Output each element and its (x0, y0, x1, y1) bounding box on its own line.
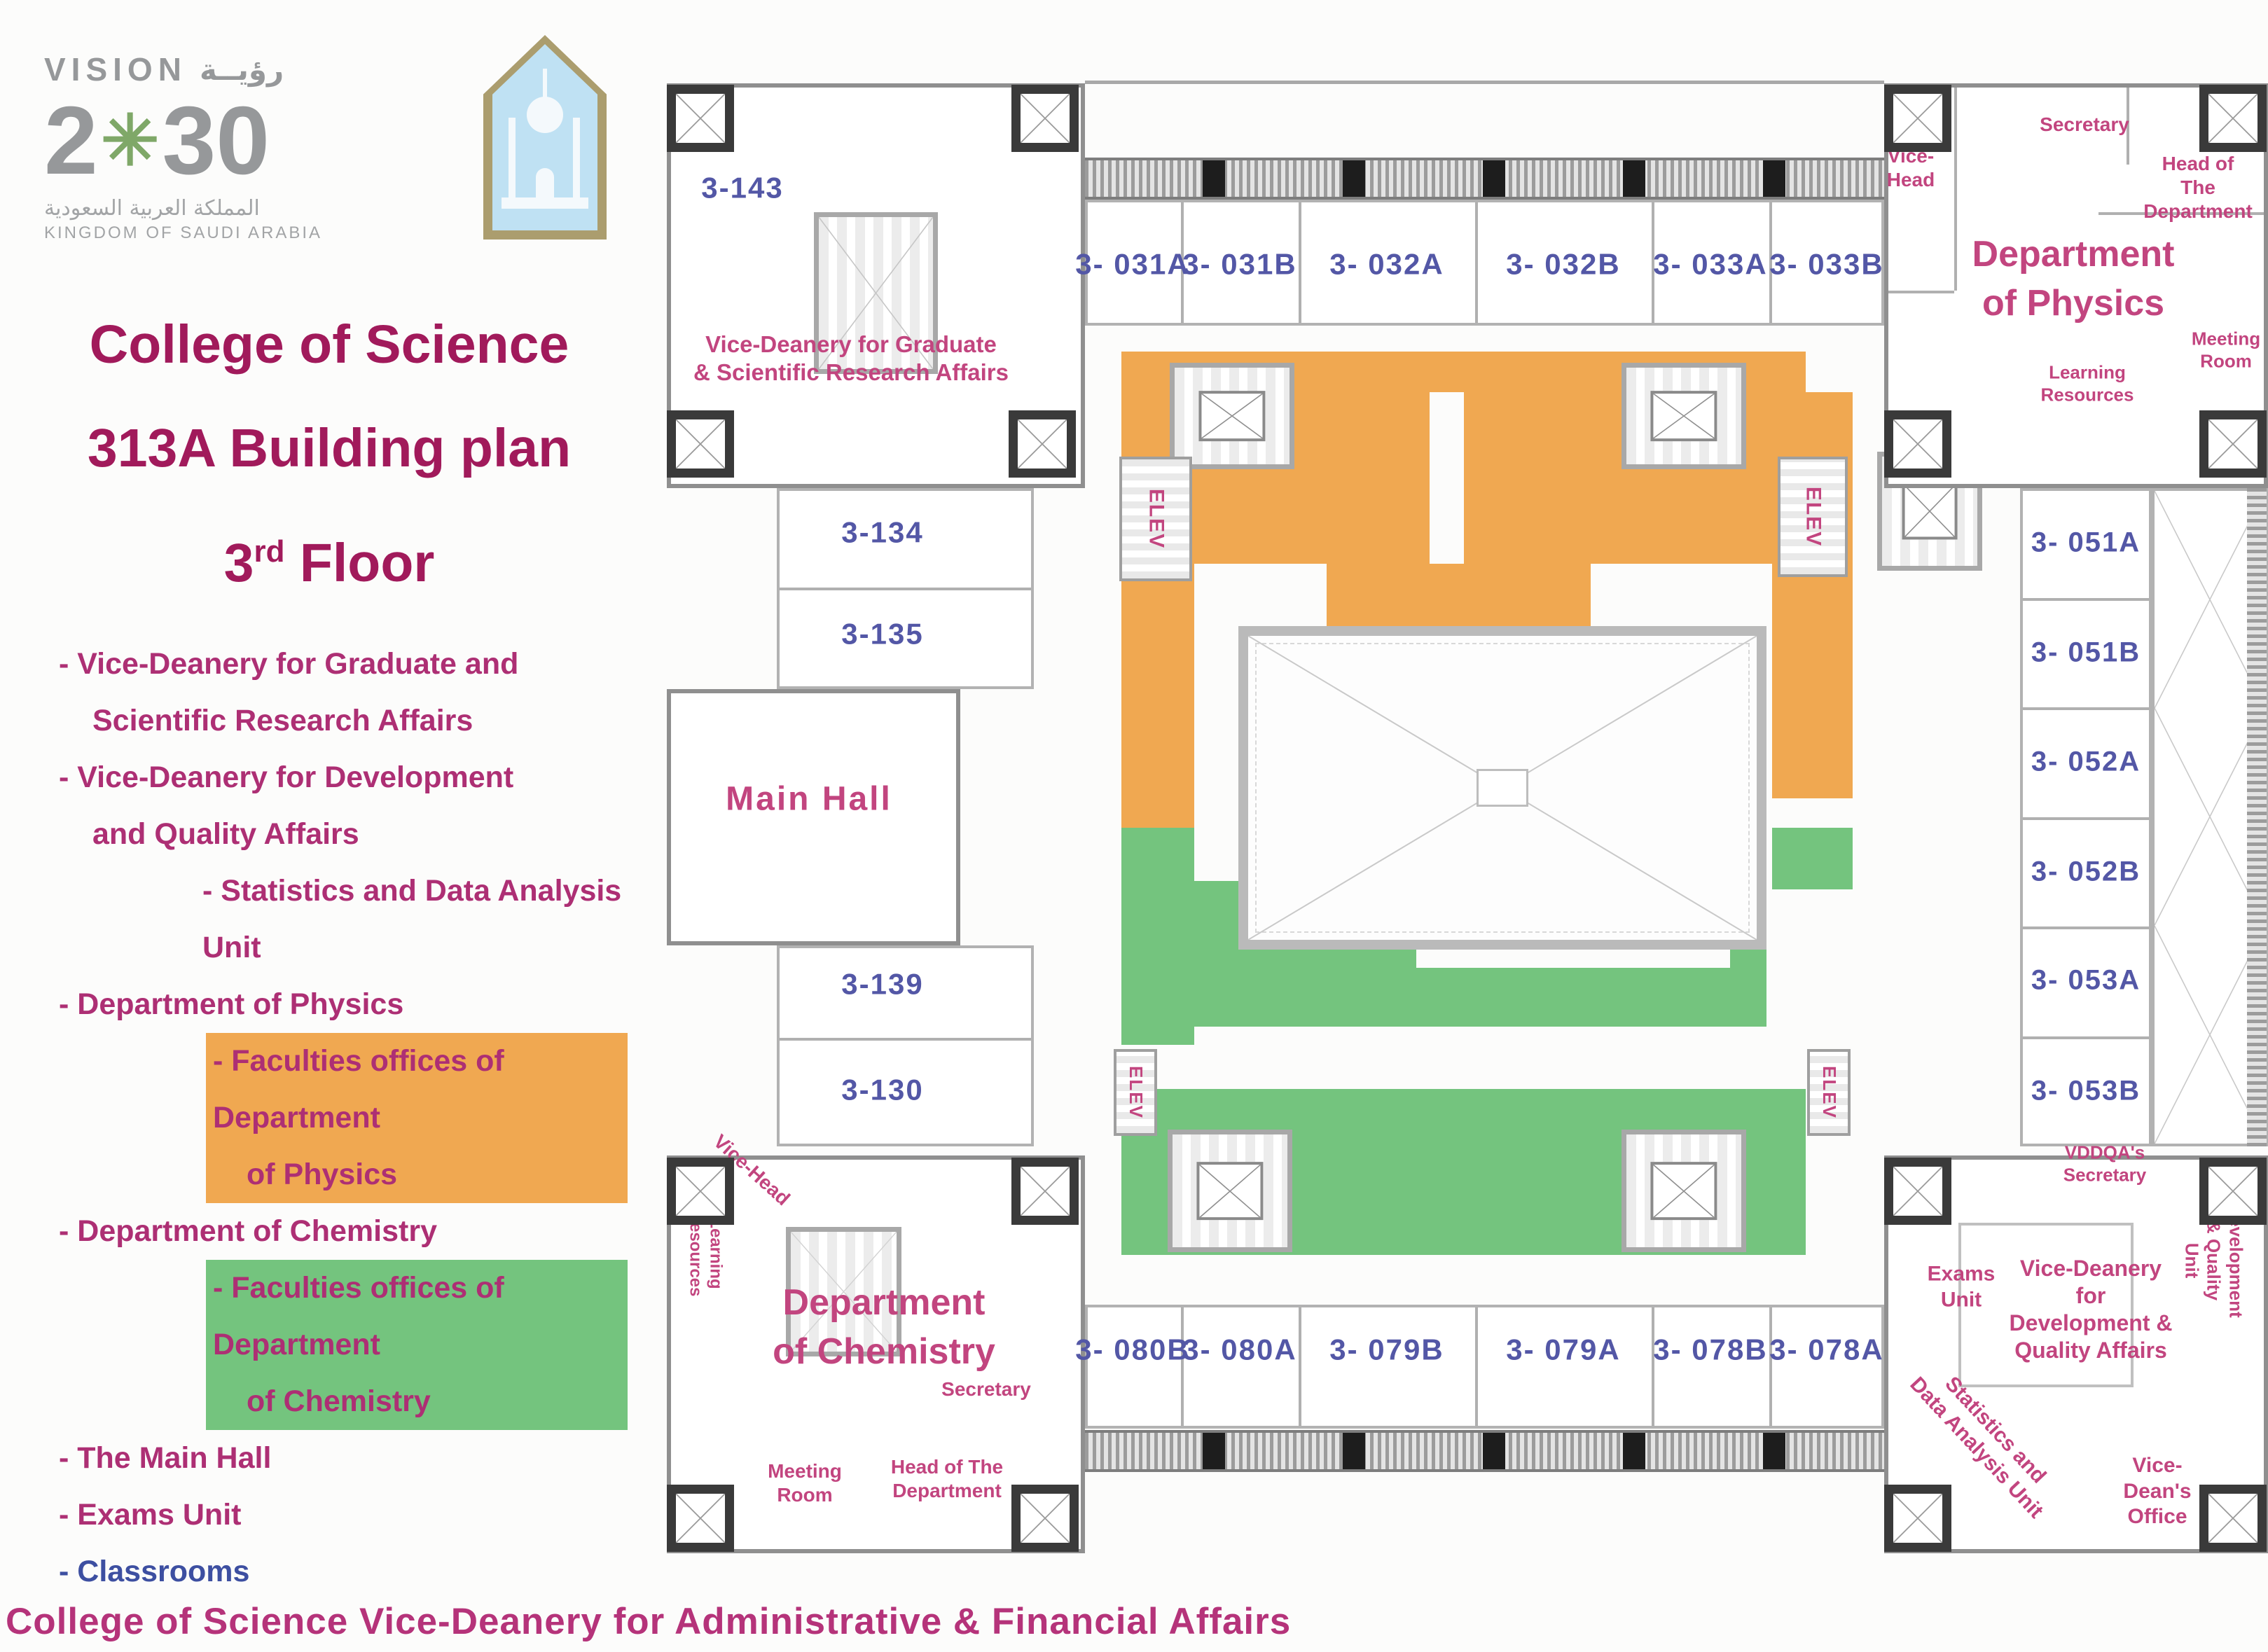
central-courtyard (1238, 626, 1766, 950)
room-label-3-053B: 3- 053B (2031, 1074, 2141, 1109)
room-label-3-135: 3-135 (841, 616, 923, 651)
wall (1954, 88, 1957, 291)
stair-x (1653, 1165, 1714, 1218)
stair-x (1893, 1494, 1942, 1543)
room-divider (2023, 598, 2149, 601)
corner-stair (667, 1485, 734, 1552)
outer-wall-top (1085, 81, 1884, 84)
stair-x (1201, 394, 1262, 438)
corner-stair (1009, 410, 1076, 478)
label-chemistry-head-of-department: Head of The Department (891, 1455, 1003, 1503)
legend-item-main-hall: - The Main Hall (59, 1430, 661, 1487)
label-exams-unit: Exams Unit (1928, 1261, 1996, 1312)
emblem-door (536, 168, 554, 197)
room-label-3-139: 3-139 (841, 966, 923, 1001)
label-chemistry-meeting-room: Meeting Room (768, 1459, 842, 1507)
emblem-minaret-right (573, 118, 580, 200)
kingdom-english: KINGDOM OF SAUDI ARABIA (44, 223, 338, 243)
stair-x (1653, 394, 1714, 438)
legend-text: - Faculties offices of Department (213, 1033, 628, 1146)
corner-stair (2199, 410, 2267, 478)
room-label-3-051A: 3- 051A (2031, 526, 2141, 560)
legend-text: - Department of Chemistry (59, 1203, 661, 1260)
year-digit-2: 2 (44, 92, 98, 189)
room-label-3-031A: 3- 031A (1075, 246, 1189, 282)
stair-x (1021, 1494, 1070, 1543)
stair-x (676, 1167, 725, 1216)
corner-stair (1011, 85, 1079, 152)
stair-core-inner (1650, 1162, 1717, 1221)
corner-stair (667, 1158, 734, 1225)
page-title: College of Science 313A Building plan 3r… (21, 293, 637, 615)
corner-stair (1884, 85, 1951, 152)
corner-stair (2199, 85, 2267, 152)
room-divider (2023, 926, 2149, 929)
stair-core-upper-left (1170, 363, 1294, 469)
stair-core-upper-right (1622, 363, 1746, 469)
legend-item-statistics-unit: - Statistics and Data Analysis Unit (202, 863, 661, 976)
label-physics-head-of-department: Head of The Department (2143, 152, 2253, 223)
label-department-of-physics: Department of Physics (1972, 230, 2175, 328)
label-physics-secretary: Secretary (2040, 113, 2129, 137)
wall (1888, 291, 1954, 293)
stair-x (1905, 485, 1955, 536)
room-divider (1475, 1307, 1478, 1426)
label-department-of-chemistry: Department of Chemistry (773, 1278, 995, 1376)
legend-text: - Vice-Deanery for Development (59, 749, 661, 806)
room-label-3-079B: 3- 079B (1329, 1331, 1444, 1367)
vision-2030-logo: VISION رؤيــة 2 ✳ 30 المملكة العربية الس… (44, 50, 338, 243)
university-emblem (483, 35, 607, 240)
corner-stair (1884, 1485, 1951, 1552)
stair-core-inner (1902, 483, 1958, 539)
legend-item-dept-chemistry: - Department of Chemistry (59, 1203, 661, 1260)
legend-text: - Exams Unit (59, 1487, 661, 1543)
legend-text: of Chemistry (213, 1373, 628, 1430)
east-classrooms (2020, 488, 2152, 1146)
palm-emblem-icon: ✳ (101, 106, 160, 176)
stair-x (2208, 419, 2257, 468)
floor-word: Floor (284, 533, 434, 593)
room-label-3-052A: 3- 052A (2031, 745, 2141, 779)
room-label-3-078B: 3- 078B (1653, 1331, 1767, 1367)
room-divider (1475, 202, 1478, 323)
legend-text: - The Main Hall (59, 1430, 661, 1487)
stair-x (676, 94, 725, 143)
legend-item-vd-graduate: - Vice-Deanery for Graduate and Scientif… (59, 636, 661, 749)
label-elev-lower-right: ELEV (1818, 1066, 1840, 1119)
corner-stair (1011, 1158, 1079, 1225)
physics-office-zone (1772, 392, 1853, 798)
facade-bottom (1085, 1430, 1884, 1472)
stair-x (2208, 1167, 2257, 1216)
emblem-dome (527, 97, 563, 133)
stair-core-lower-left (1168, 1130, 1292, 1252)
stair-x (1199, 1165, 1260, 1218)
room-divider (2023, 707, 2149, 710)
legend-text: - Statistics and Data Analysis Unit (202, 863, 661, 976)
corner-stair (667, 410, 734, 478)
physics-office-zone (1327, 564, 1591, 626)
legend-item-classrooms: - Classrooms (59, 1543, 661, 1600)
stair-x (1893, 94, 1942, 143)
label-vice-deanery-graduate: Vice-Deanery for Graduate & Scientific R… (693, 331, 1009, 387)
room-label-3-130: 3-130 (841, 1071, 923, 1107)
stair-x (676, 1494, 725, 1543)
room-divider (1299, 202, 1301, 323)
title-line-3: 3rd Floor (21, 500, 637, 615)
title-line-2: 313A Building plan (21, 396, 637, 500)
label-elev-upper-right: ELEV (1800, 487, 1826, 547)
legend-item-dept-physics: - Department of Physics (59, 976, 661, 1033)
room-label-3-033B: 3- 033B (1769, 246, 1883, 282)
room-label-3-080A: 3- 080A (1182, 1331, 1297, 1367)
floor-ordinal-suffix: rd (254, 534, 284, 569)
stair-x (1021, 1167, 1070, 1216)
legend-item-physics-offices: - Faculties offices of Department of Phy… (206, 1033, 628, 1203)
label-vice-dean-office: Vice-Dean's Office (2102, 1453, 2213, 1530)
room-label-3-134: 3-134 (841, 514, 923, 550)
stair-x (1893, 419, 1942, 468)
courtyard-center-box (1477, 769, 1528, 807)
floor-plan-page: VISION رؤيــة 2 ✳ 30 المملكة العربية الس… (0, 0, 2268, 1652)
corner-stair (1884, 1158, 1951, 1225)
vision-logo-row: VISION رؤيــة (44, 50, 338, 88)
label-physics-meeting-room: Meeting Room (2192, 328, 2260, 372)
label-main-hall: Main Hall (726, 779, 892, 821)
year-digits-30: 30 (163, 92, 270, 189)
room-label-3-080B: 3- 080B (1075, 1331, 1189, 1367)
chemistry-office-zone (1772, 828, 1853, 889)
room-divider (2023, 1036, 2149, 1039)
label-chemistry-secretary: Secretary (941, 1377, 1031, 1401)
emblem-minaret-left (509, 118, 516, 200)
corner-stair (667, 85, 734, 152)
legend-text: Scientific Research Affairs (59, 693, 661, 749)
room-label-3-052B: 3- 052B (2031, 855, 2141, 889)
room-label-3-032A: 3- 032A (1329, 246, 1444, 282)
corner-stair (2199, 1485, 2267, 1552)
legend-item-exams-unit: - Exams Unit (59, 1487, 661, 1543)
corner-stair (1884, 410, 1951, 478)
title-line-1: College of Science (21, 293, 637, 396)
stair-x (1021, 94, 1070, 143)
corner-stair (2199, 1158, 2267, 1225)
legend: - Vice-Deanery for Graduate and Scientif… (59, 636, 661, 1600)
label-elev-upper-left: ELEV (1143, 489, 1169, 549)
vision-word: VISION (44, 50, 187, 88)
room-label-3-031B: 3- 031B (1182, 246, 1297, 282)
legend-text: - Vice-Deanery for Graduate and (59, 636, 661, 693)
label-elev-lower-left: ELEV (1124, 1066, 1147, 1119)
stair-x (2208, 1494, 2257, 1543)
vision-word-arabic: رؤيــة (200, 53, 284, 87)
stair-core-inner (1650, 391, 1717, 441)
legend-text: - Classrooms (59, 1543, 661, 1600)
room-divider (780, 1038, 1031, 1041)
room-label-3-033A: 3- 033A (1653, 246, 1767, 282)
legend-text: and Quality Affairs (59, 806, 661, 863)
room-label-3-053A: 3- 053A (2031, 964, 2141, 998)
east-edge-hatch (2247, 488, 2267, 1146)
room-divider (1299, 1307, 1301, 1426)
stair-x (2208, 94, 2257, 143)
stair-x (676, 419, 725, 468)
corner-stair (1011, 1485, 1079, 1552)
vision-year: 2 ✳ 30 (44, 92, 338, 189)
stair-core-inner (1196, 1162, 1263, 1221)
emblem-base (502, 197, 588, 209)
stair-core-inner (1198, 391, 1265, 441)
stair-x (1893, 1167, 1942, 1216)
label-vice-deanery-development: Vice-Deanery for Development & Quality A… (2003, 1255, 2180, 1364)
label-vddqa-secretary: VDDQA's Secretary (2063, 1141, 2147, 1186)
room-label-3-032B: 3- 032B (1506, 246, 1620, 282)
label-physics-learning-resources: Learning Resources (2041, 361, 2134, 405)
room-divider (2023, 817, 2149, 820)
room-label-3-143: 3-143 (701, 169, 783, 205)
stair-x (1018, 419, 1067, 468)
chemistry-office-zone (1416, 968, 1730, 1027)
room-divider (780, 588, 1031, 590)
room-label-3-079A: 3- 079A (1506, 1331, 1620, 1367)
legend-text: - Department of Physics (59, 976, 661, 1033)
kingdom-arabic: المملكة العربية السعودية (44, 196, 338, 221)
physics-office-zone (1121, 564, 1194, 828)
legend-text: of Physics (213, 1146, 628, 1203)
footer-caption: College of Science Vice-Deanery for Admi… (6, 1600, 1547, 1643)
facade-top (1085, 158, 1884, 200)
room-label-3-078A: 3- 078A (1769, 1331, 1883, 1367)
stair-core-lower-right (1622, 1130, 1746, 1252)
room-label-3-051B: 3- 051B (2031, 636, 2141, 670)
legend-item-vd-development: - Vice-Deanery for Development and Quali… (59, 749, 661, 863)
legend-text: - Faculties offices of Department (213, 1260, 628, 1373)
legend-item-chemistry-offices: - Faculties offices of Department of Che… (206, 1260, 628, 1430)
floor-number: 3 (224, 533, 254, 593)
